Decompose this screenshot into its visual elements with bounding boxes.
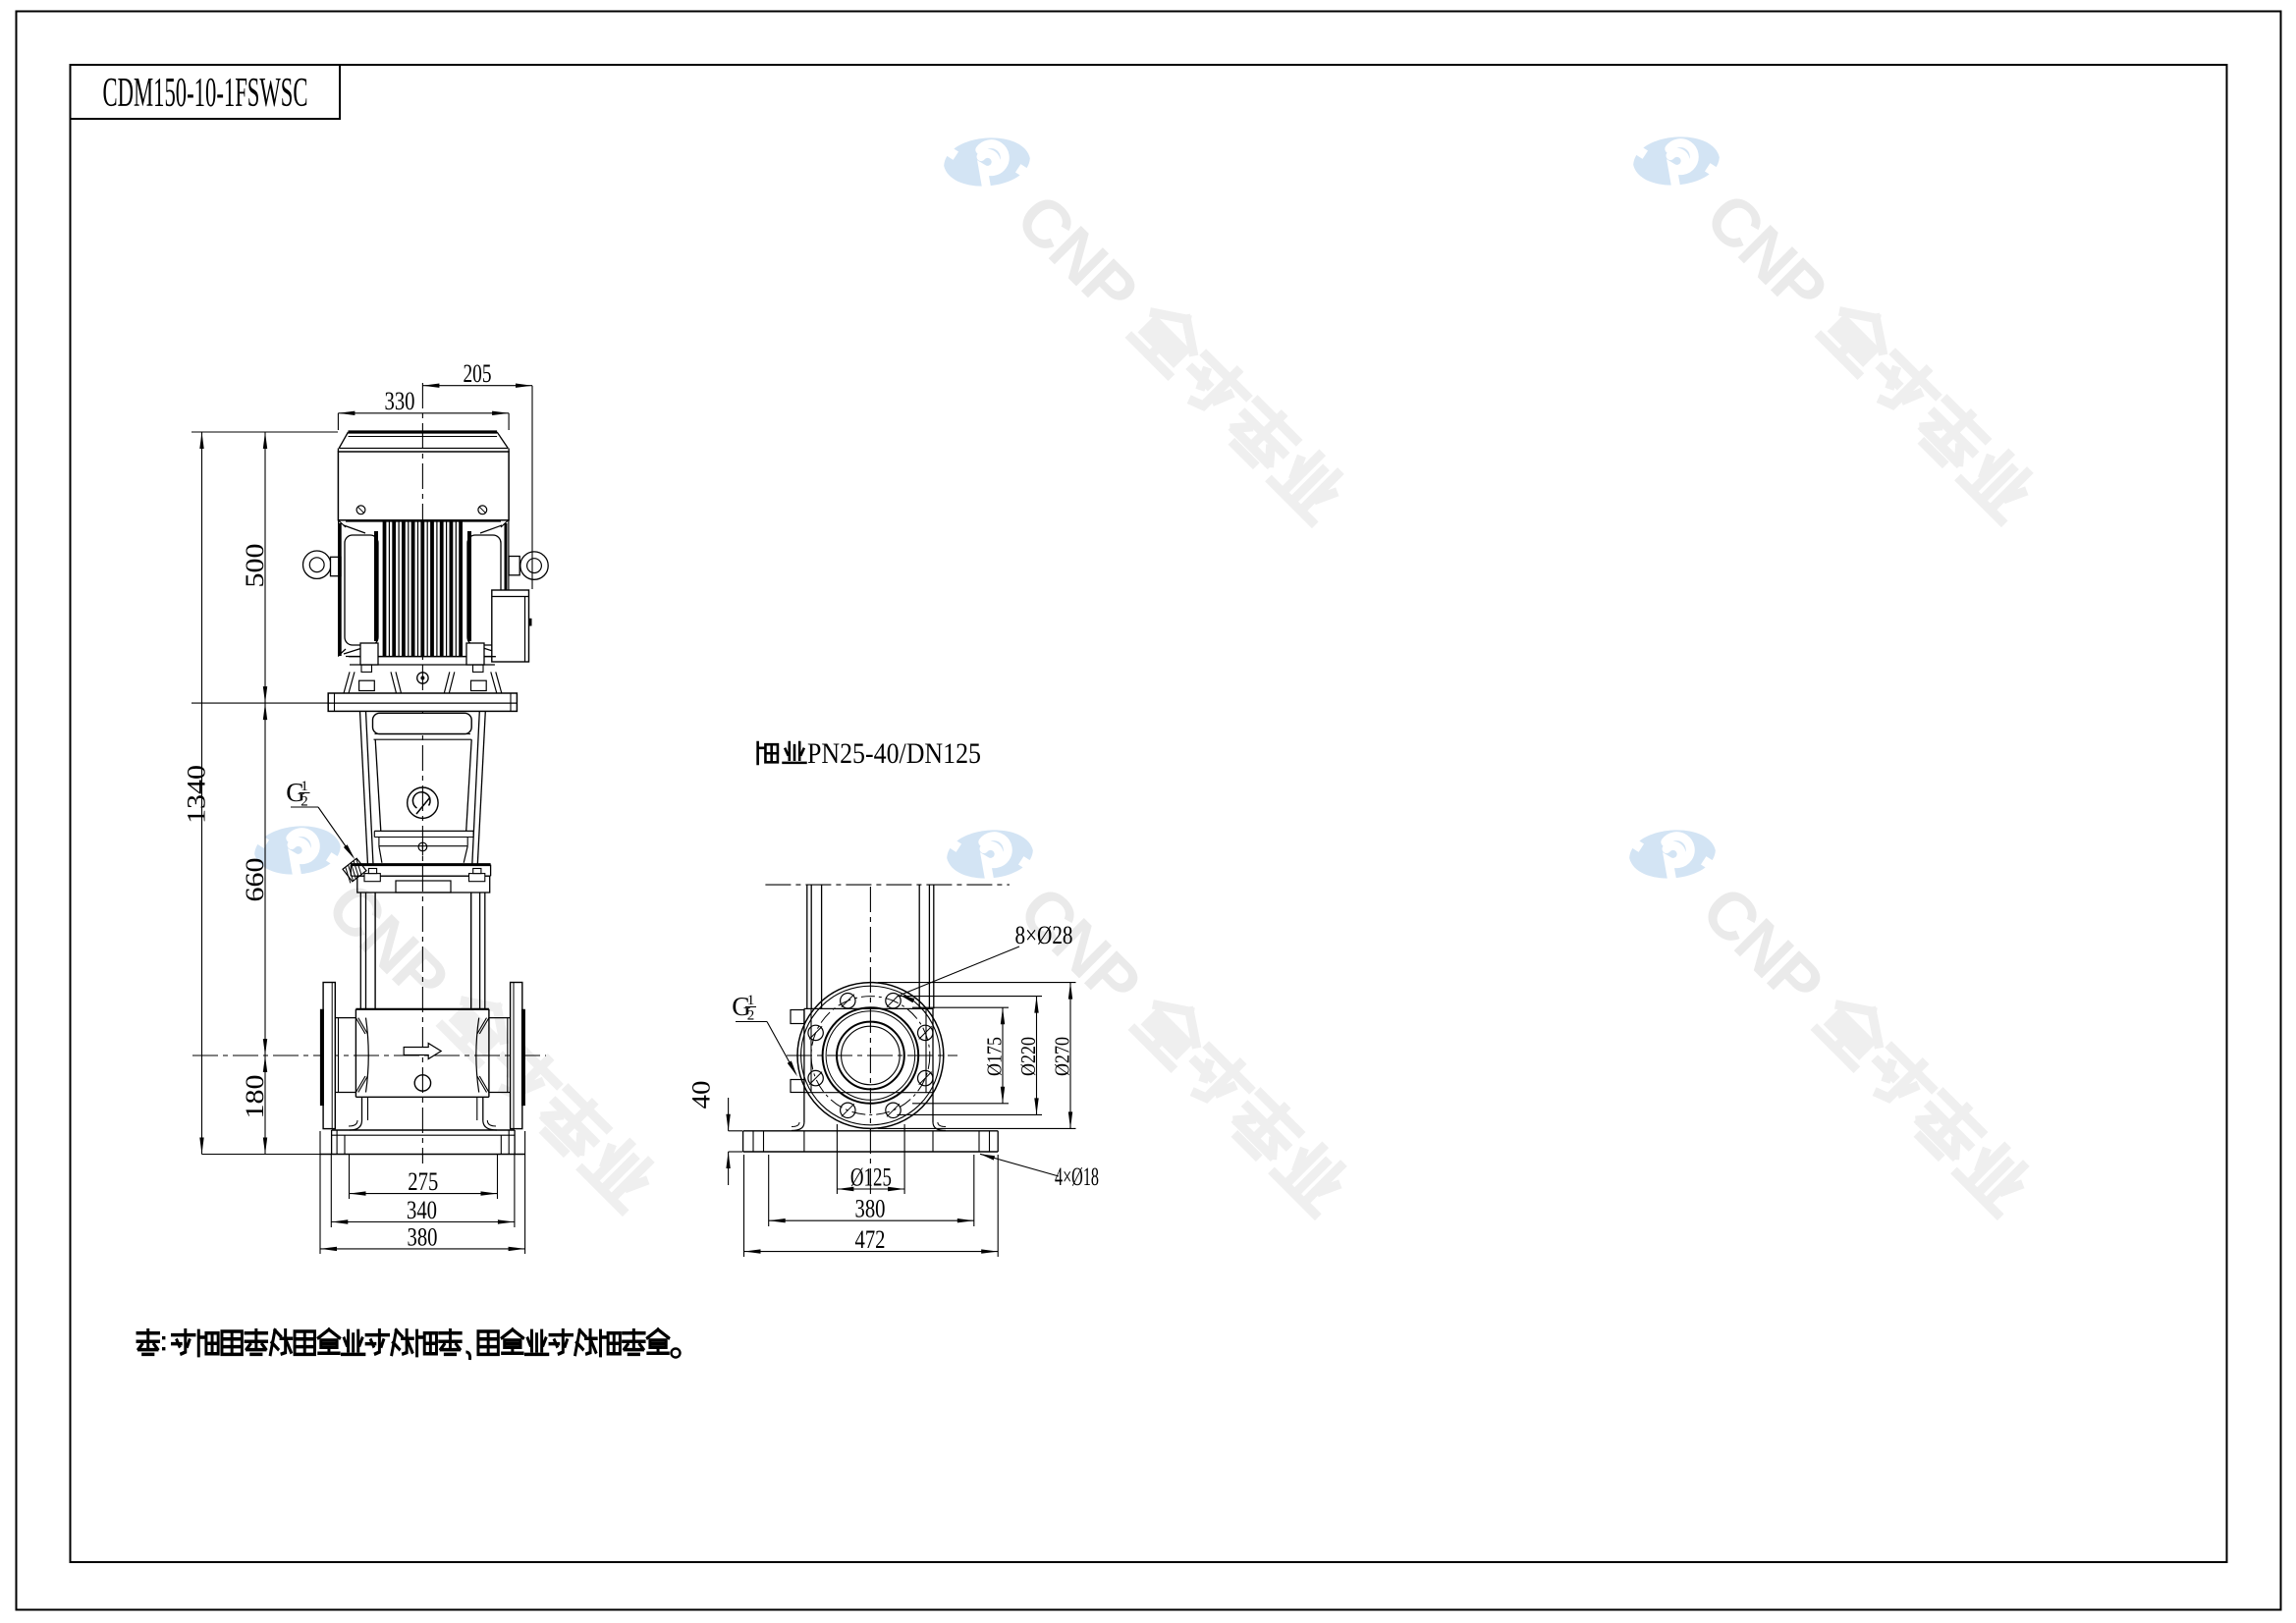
svg-text:4×Ø18: 4×Ø18 — [1055, 1163, 1099, 1191]
svg-text:1340: 1340 — [183, 765, 211, 824]
svg-text:380: 380 — [408, 1222, 438, 1251]
svg-text:1: 1 — [301, 779, 308, 794]
svg-text:472: 472 — [855, 1225, 886, 1254]
svg-text:205: 205 — [464, 359, 492, 388]
svg-text:340: 340 — [407, 1196, 437, 1224]
svg-text:380: 380 — [855, 1195, 886, 1223]
svg-text:8×Ø28: 8×Ø28 — [1015, 921, 1073, 949]
svg-text:180: 180 — [241, 1075, 269, 1119]
svg-text:Ø270: Ø270 — [1051, 1037, 1074, 1076]
svg-text:660: 660 — [241, 858, 269, 902]
svg-text:CDM150-10-1FSWSC: CDM150-10-1FSWSC — [103, 71, 308, 116]
svg-text:Ø175: Ø175 — [983, 1037, 1007, 1076]
svg-text:Ø125: Ø125 — [850, 1163, 892, 1192]
svg-text:275: 275 — [408, 1167, 438, 1196]
svg-text:PN25-40/DN125: PN25-40/DN125 — [807, 737, 981, 770]
svg-text:330: 330 — [385, 387, 415, 415]
svg-text:Ø220: Ø220 — [1016, 1037, 1040, 1076]
svg-text:500: 500 — [241, 544, 269, 588]
svg-text:40: 40 — [687, 1081, 716, 1109]
svg-text:1: 1 — [747, 993, 755, 1008]
